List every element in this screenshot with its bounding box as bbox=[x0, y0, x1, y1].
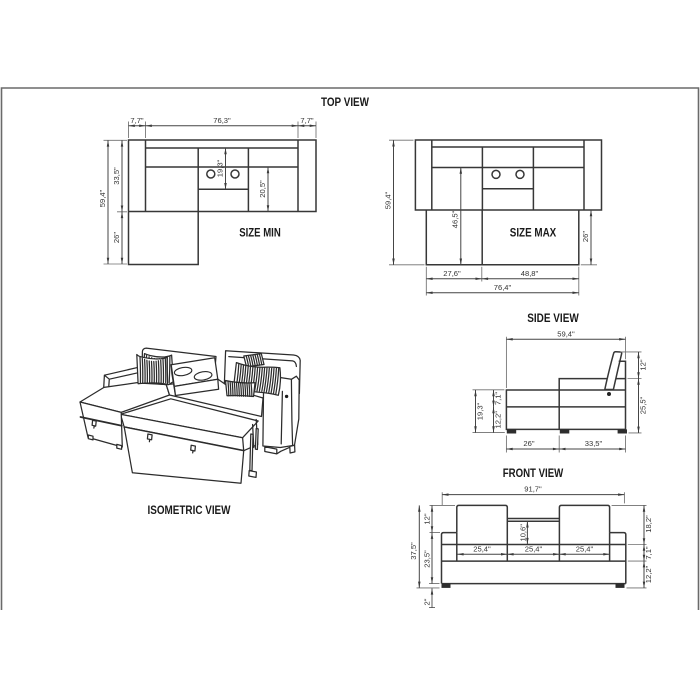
svg-text:12": 12" bbox=[639, 359, 648, 370]
svg-text:25,5": 25,5" bbox=[639, 396, 648, 414]
svg-text:7,7": 7,7" bbox=[300, 116, 314, 125]
svg-text:46,5": 46,5" bbox=[451, 210, 460, 228]
svg-text:25,4": 25,4" bbox=[473, 544, 491, 553]
svg-text:59,4": 59,4" bbox=[98, 189, 107, 207]
svg-text:SIZE MIN: SIZE MIN bbox=[239, 226, 281, 240]
svg-text:12,2": 12,2" bbox=[494, 411, 503, 429]
svg-text:TOP VIEW: TOP VIEW bbox=[321, 95, 370, 109]
svg-text:7,1": 7,1" bbox=[644, 546, 653, 560]
svg-text:12,2": 12,2" bbox=[644, 565, 653, 583]
svg-text:2": 2" bbox=[422, 598, 431, 605]
svg-text:27,6": 27,6" bbox=[443, 269, 461, 278]
svg-text:26": 26" bbox=[523, 439, 534, 448]
svg-text:59,4": 59,4" bbox=[383, 191, 392, 209]
svg-text:91,7": 91,7" bbox=[524, 485, 542, 494]
svg-text:19,3": 19,3" bbox=[476, 402, 485, 420]
svg-text:FRONT VIEW: FRONT VIEW bbox=[503, 466, 564, 480]
svg-text:12": 12" bbox=[422, 513, 431, 524]
svg-text:76,3": 76,3" bbox=[213, 116, 231, 125]
svg-text:33,5": 33,5" bbox=[585, 439, 603, 448]
svg-text:37,5": 37,5" bbox=[409, 542, 418, 560]
svg-text:59,4": 59,4" bbox=[557, 329, 575, 338]
svg-text:48,8": 48,8" bbox=[521, 269, 539, 278]
svg-text:SIZE MAX: SIZE MAX bbox=[510, 226, 557, 240]
svg-text:18,2": 18,2" bbox=[644, 515, 653, 533]
svg-text:SIDE VIEW: SIDE VIEW bbox=[527, 311, 579, 325]
svg-text:33,5": 33,5" bbox=[112, 167, 121, 185]
svg-text:7,1": 7,1" bbox=[494, 392, 503, 406]
svg-text:25,4": 25,4" bbox=[576, 544, 594, 553]
svg-text:10,6": 10,6" bbox=[518, 524, 527, 542]
svg-text:23,5": 23,5" bbox=[422, 550, 431, 568]
svg-text:ISOMETRIC VIEW: ISOMETRIC VIEW bbox=[148, 503, 232, 517]
svg-text:76,4": 76,4" bbox=[494, 283, 512, 292]
svg-text:7,7": 7,7" bbox=[130, 116, 144, 125]
svg-text:25,4": 25,4" bbox=[525, 544, 543, 553]
svg-text:26": 26" bbox=[581, 231, 590, 242]
svg-text:20,5": 20,5" bbox=[258, 180, 267, 198]
svg-text:26": 26" bbox=[112, 232, 121, 243]
svg-text:19,3": 19,3" bbox=[215, 159, 224, 177]
